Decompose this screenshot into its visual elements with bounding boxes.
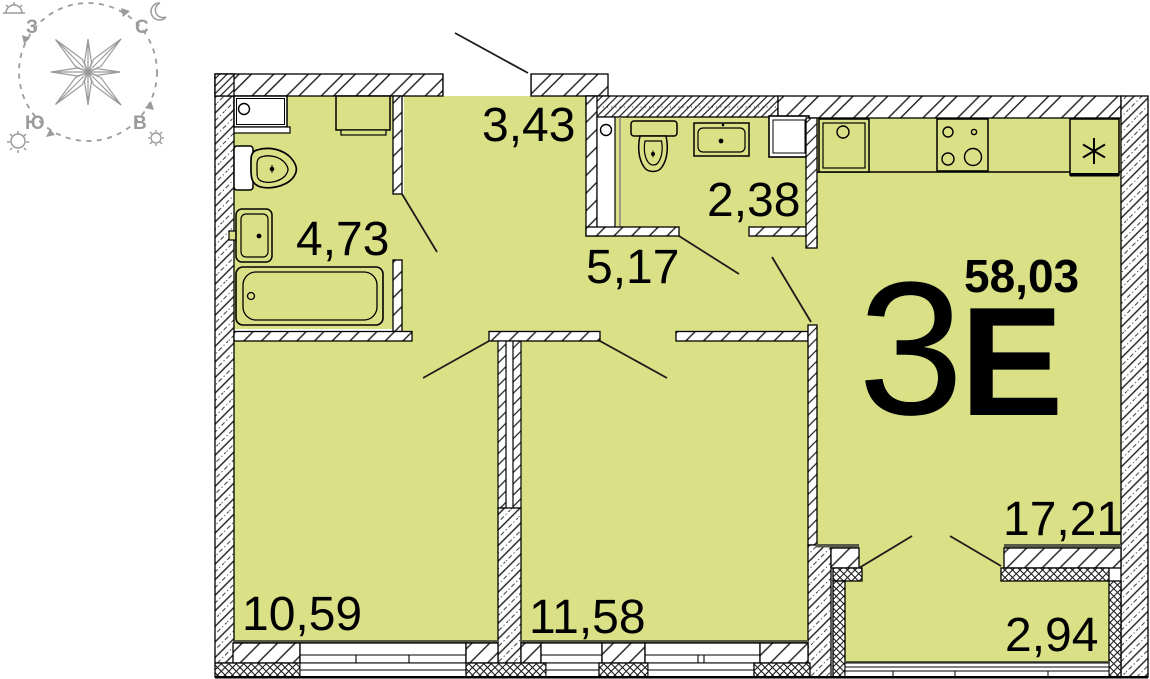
svg-text:З: З xyxy=(26,17,38,38)
svg-text:3: 3 xyxy=(858,243,964,455)
svg-text:10,59: 10,59 xyxy=(242,588,362,641)
svg-text:С: С xyxy=(135,17,149,38)
svg-text:4,73: 4,73 xyxy=(296,213,389,266)
svg-text:2,94: 2,94 xyxy=(1005,609,1098,662)
svg-text:5,17: 5,17 xyxy=(586,241,679,294)
svg-text:Ю: Ю xyxy=(25,113,45,134)
svg-text:2,38: 2,38 xyxy=(707,174,800,227)
svg-text:17,21: 17,21 xyxy=(1003,493,1123,546)
svg-text:3,43: 3,43 xyxy=(482,99,575,152)
svg-text:В: В xyxy=(133,113,147,134)
svg-text:Е: Е xyxy=(960,275,1063,448)
svg-text:11,58: 11,58 xyxy=(529,591,646,644)
